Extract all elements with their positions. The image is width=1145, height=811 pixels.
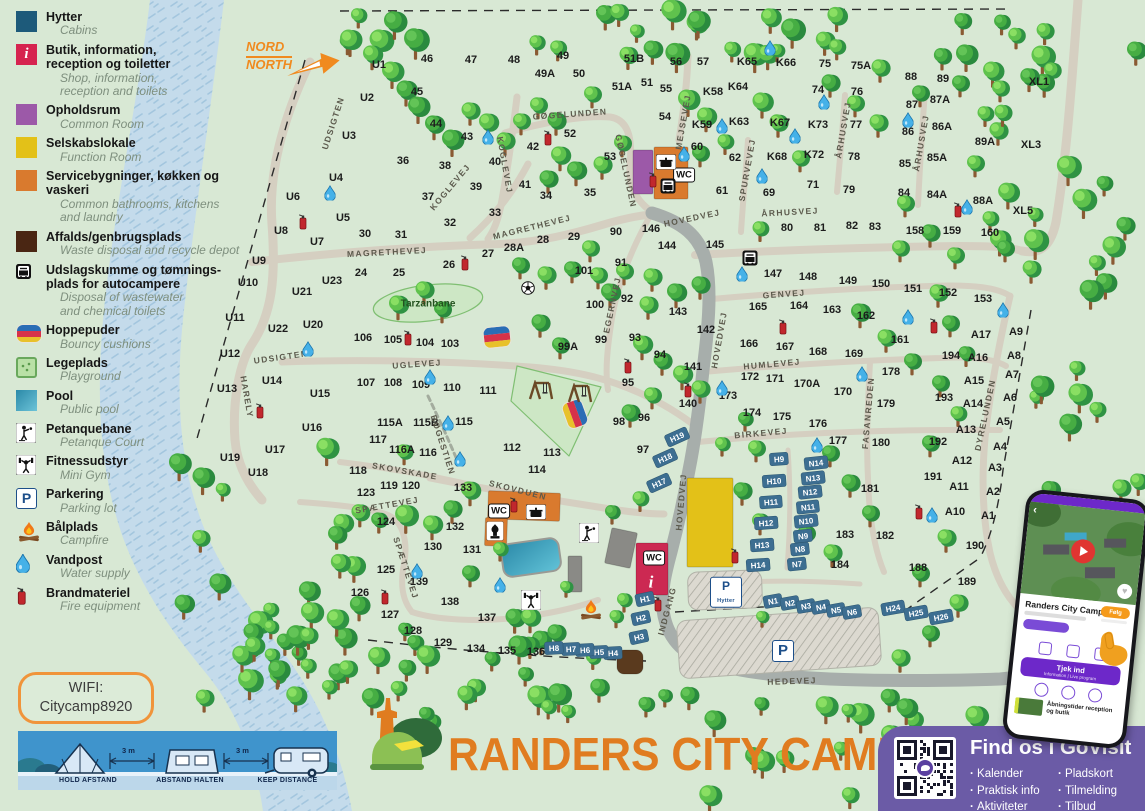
tree <box>738 412 754 432</box>
tree <box>1080 280 1105 310</box>
legend-label-en: Common bathrooms, kitchens and laundry <box>60 198 258 225</box>
caption-abstand-halten: ABSTAND HALTEN <box>140 777 240 784</box>
legend-label-da: Opholdsrum <box>46 103 144 117</box>
tree <box>822 74 841 98</box>
legend-label-en: Playground <box>60 370 121 383</box>
tree <box>724 42 741 63</box>
tree <box>564 261 582 283</box>
tree <box>397 444 414 465</box>
building <box>617 650 643 674</box>
tree <box>633 335 653 360</box>
tree <box>461 481 481 506</box>
legend-label-en: Mini Gym <box>60 469 128 482</box>
tree <box>959 346 976 367</box>
tree <box>922 625 940 647</box>
building <box>605 528 638 569</box>
tree <box>567 161 587 186</box>
building <box>654 147 688 199</box>
tree <box>870 114 889 138</box>
legend-label-da: Butik, information, reception og toilett… <box>46 43 170 72</box>
action-icon-2[interactable] <box>1066 644 1080 658</box>
legend-item-udslagskumme: Udslagskumme og tømnings- plads for auto… <box>16 263 258 319</box>
north-arrow-icon <box>286 52 342 78</box>
tree <box>824 544 843 568</box>
petanque-icon <box>16 422 46 450</box>
tree <box>912 565 930 587</box>
tree <box>930 284 949 308</box>
legend-label-en: Public pool <box>60 403 119 416</box>
tree <box>351 504 370 527</box>
road <box>741 140 748 232</box>
road <box>983 296 1020 610</box>
app-aerial-photo: ‹ ♥ <box>1020 502 1145 606</box>
govisit-bullet: Pladskort <box>1058 766 1117 783</box>
tree <box>316 438 339 466</box>
tree <box>399 660 417 682</box>
tree <box>584 86 602 108</box>
feature-icon-1[interactable] <box>1034 682 1049 697</box>
tree <box>950 594 969 618</box>
legend-item-selskabslokale: SelskabslokaleFunction Room <box>16 136 258 164</box>
wifi-info-box: WIFI: Citycamp8920 <box>18 672 154 724</box>
tree <box>560 581 574 598</box>
tree <box>479 113 499 138</box>
legend-item-legeplads: LegepladsPlayground <box>16 356 258 384</box>
tree <box>938 529 957 553</box>
tree <box>1069 361 1085 381</box>
tree <box>872 59 891 83</box>
qr-code <box>894 737 956 799</box>
tree <box>934 48 952 71</box>
tree <box>371 512 388 533</box>
legend-label-en: Bouncy cushions <box>60 338 151 351</box>
tree <box>328 526 347 550</box>
color-swatch <box>16 169 46 225</box>
tree <box>952 75 970 97</box>
tree <box>992 80 1010 102</box>
tree <box>748 440 766 462</box>
building <box>636 543 668 595</box>
tree <box>638 697 655 718</box>
tree <box>781 18 806 48</box>
govisit-bullet: Aktiviteter <box>970 799 1040 811</box>
parking-icon: P <box>16 487 46 515</box>
phone-screen: ‹ ♥ Randers City Camp Følg Tjek ind Info… <box>1006 493 1145 746</box>
legend-label-en: Campfire <box>60 534 109 547</box>
playground-icon <box>16 356 46 384</box>
dump-station-icon <box>16 263 46 319</box>
legend-label-da: Bålplads <box>46 520 109 534</box>
tree <box>617 593 633 613</box>
tree <box>1072 189 1097 219</box>
tree <box>196 690 215 713</box>
road <box>695 246 1022 255</box>
road <box>837 95 845 192</box>
legend-label-en: Disposal of wastewater and chemical toil… <box>60 291 221 318</box>
color-swatch <box>16 103 46 131</box>
tree <box>994 15 1011 36</box>
legend-label-en: Parking lot <box>60 502 117 515</box>
tree <box>904 353 922 375</box>
tree <box>851 303 871 328</box>
feature-icon-3[interactable] <box>1087 687 1102 702</box>
tree <box>954 13 972 35</box>
tree <box>734 482 753 506</box>
tree <box>462 565 480 587</box>
opening-thumbnail <box>1014 697 1044 716</box>
parking-area <box>687 570 762 611</box>
tree <box>594 156 613 180</box>
road <box>867 362 884 572</box>
legend-label-da: Petanquebane <box>46 422 144 436</box>
campfire-icon <box>16 520 46 548</box>
legend-label-da: Udslagskumme og tømnings- plads for auto… <box>46 263 221 292</box>
legend-label-da: Affalds/genbrugsplads <box>46 230 239 244</box>
tree <box>301 659 317 679</box>
brand-title: RANDERS CITY CAMP <box>448 727 906 781</box>
tree <box>661 0 686 30</box>
fire-extinguisher-icon <box>16 586 46 614</box>
tree <box>404 28 430 59</box>
pool <box>500 537 562 578</box>
building <box>633 150 653 194</box>
building <box>687 478 733 567</box>
pool-icon <box>16 389 46 417</box>
tree <box>680 687 699 710</box>
tree <box>1028 207 1044 227</box>
tree <box>485 652 501 672</box>
tree <box>658 689 673 707</box>
tree <box>718 134 735 155</box>
tree <box>753 92 774 118</box>
legend-item-parkering: PParkeringParking lot <box>16 487 258 515</box>
road <box>918 92 925 205</box>
tree <box>816 696 839 724</box>
tree <box>442 130 465 158</box>
tree <box>640 296 659 320</box>
legend-label-da: Hoppepuder <box>46 323 151 337</box>
tree <box>932 375 950 397</box>
tree <box>697 107 717 132</box>
tree <box>1037 23 1055 45</box>
tree <box>521 608 541 633</box>
tree <box>654 352 673 376</box>
legend-label-da: Servicebygninger, køkken og vaskeri <box>46 169 258 198</box>
tree <box>753 221 770 242</box>
tree <box>550 40 567 61</box>
tree <box>978 106 995 127</box>
building <box>485 518 508 547</box>
tree <box>897 195 915 217</box>
tree <box>827 7 848 32</box>
tree <box>770 114 789 138</box>
road <box>712 285 1010 299</box>
tree <box>619 47 638 70</box>
tree <box>605 505 621 525</box>
tree <box>368 647 390 674</box>
legend-label-en: Water supply <box>60 567 130 580</box>
legend-label-en: Shop, information, reception and toilets <box>60 72 170 99</box>
govisit-bullets-left: KalenderPraktisk infoAktiviteter <box>970 766 1040 811</box>
tree <box>644 268 663 292</box>
tree <box>892 649 911 673</box>
tree <box>1130 473 1145 496</box>
tree <box>363 45 383 70</box>
tree <box>630 24 645 42</box>
legend-item-pool: PoolPublic pool <box>16 389 258 417</box>
tree <box>1127 42 1145 66</box>
tree <box>457 686 477 711</box>
legend-label-da: Brandmateriel <box>46 586 140 600</box>
legend-item-hytter: HytterCabins <box>16 10 258 38</box>
tree <box>423 515 443 540</box>
tree <box>540 170 559 194</box>
tree <box>1068 383 1093 413</box>
tree <box>1097 176 1114 197</box>
tree <box>532 314 551 338</box>
tree <box>351 8 367 28</box>
tree <box>692 145 710 167</box>
legend-item-fitnessudstyr: FitnessudstyrMini Gym <box>16 454 258 482</box>
tree <box>529 35 545 55</box>
tree <box>1059 414 1082 442</box>
tree <box>942 315 960 337</box>
tree <box>922 435 940 457</box>
legend-item-servicebygninger: Servicebygninger, køkken og vaskeriCommo… <box>16 169 258 225</box>
tree <box>444 500 463 524</box>
tree <box>1020 68 1040 92</box>
legend-label-da: Vandpost <box>46 553 130 567</box>
water-drop-icon <box>16 553 46 581</box>
tree <box>601 283 621 308</box>
tree <box>512 257 530 279</box>
tree <box>989 122 1008 146</box>
govisit-eye-icon <box>915 758 935 778</box>
tree <box>538 266 557 290</box>
tree <box>508 635 532 664</box>
favorite-heart-icon[interactable]: ♥ <box>1116 583 1132 599</box>
trees <box>169 0 1145 811</box>
tree <box>842 474 861 498</box>
legend-item-affalds/genbrugsplads: Affalds/genbrugspladsWaste disposal and … <box>16 230 258 258</box>
tree <box>998 183 1020 210</box>
color-swatch <box>16 10 46 38</box>
tree <box>878 329 897 353</box>
legend-label-en: Function Room <box>60 151 141 164</box>
road <box>703 357 1006 372</box>
tree <box>688 11 711 39</box>
road <box>698 430 1000 442</box>
tree <box>1089 255 1106 276</box>
playground-area <box>511 366 601 456</box>
govisit-bullet: Tilmelding <box>1058 783 1117 800</box>
legend-item-brandmateriel: BrandmaterielFire equipment <box>16 586 258 614</box>
tree <box>673 365 693 390</box>
tree <box>754 697 769 716</box>
legend-label-da: Selskabslokale <box>46 136 141 150</box>
tree <box>350 596 371 621</box>
tree <box>331 554 351 579</box>
tree <box>842 787 860 809</box>
tree <box>610 610 625 628</box>
tree <box>847 95 865 117</box>
tree <box>947 247 965 269</box>
legend-label-da: Pool <box>46 389 119 403</box>
color-swatch <box>16 230 46 258</box>
tree <box>552 337 570 359</box>
legend-item-vandpost: VandpostWater supply <box>16 553 258 581</box>
bouncy-cushion-icon <box>16 323 46 351</box>
play-button-icon[interactable] <box>1070 538 1096 564</box>
tree <box>667 283 687 308</box>
legend-label-en: Fire equipment <box>60 600 140 613</box>
parking-area <box>676 607 882 679</box>
tree <box>417 645 441 674</box>
tree <box>622 404 641 428</box>
tree <box>829 39 846 60</box>
category-chip[interactable] <box>1023 618 1070 633</box>
tree <box>590 679 610 703</box>
tree <box>951 406 968 427</box>
road <box>428 396 458 462</box>
legend-label-da: Fitnessudstyr <box>46 454 128 468</box>
legend-item-butik: iButik, information, reception og toilet… <box>16 43 258 99</box>
tree <box>997 240 1015 262</box>
action-icon-1[interactable] <box>1038 641 1052 655</box>
legend-label-da: Parkering <box>46 487 117 501</box>
tree <box>715 437 731 457</box>
building <box>488 491 561 521</box>
legend: HytterCabinsiButik, information, recepti… <box>16 10 258 619</box>
legend-label-en: Cabins <box>60 24 97 37</box>
legend-label-da: Hytter <box>46 10 97 24</box>
legend-label-en: Waste disposal and recycle depot <box>60 244 239 257</box>
tree <box>761 8 782 34</box>
information-icon: i <box>16 43 46 99</box>
tree <box>610 4 629 27</box>
color-swatch <box>16 136 46 164</box>
tree <box>582 240 600 262</box>
govisit-bullet: Tilbud <box>1058 799 1117 811</box>
govisit-bullets-right: PladskortTilmeldingTilbud <box>1058 766 1117 811</box>
tree <box>699 785 722 811</box>
tree <box>1089 402 1106 423</box>
tree <box>1023 260 1042 283</box>
tree <box>822 445 840 467</box>
campground-map-page: U1U2U3U4U5U6U7U8U9U10U11U12U13U14U15U16U… <box>0 0 1145 811</box>
govisit-bullet: Kalender <box>970 766 1040 783</box>
tree <box>462 102 481 126</box>
govisit-bullet: Praktisk info <box>970 783 1040 800</box>
legend-item-petanquebane: PetanquebanePetanque Court <box>16 422 258 450</box>
tree <box>792 150 810 172</box>
tree <box>752 513 770 535</box>
legend-item-bålplads: BålpladsCampfire <box>16 520 258 548</box>
follow-button[interactable]: Følg <box>1101 606 1131 620</box>
logo-church-icon <box>364 696 444 791</box>
followers-placeholder <box>1101 619 1127 625</box>
mini-gym-icon <box>16 454 46 482</box>
tree <box>644 41 664 65</box>
tree <box>1008 28 1026 50</box>
tree <box>967 155 985 177</box>
legend-item-hoppepuder: HoppepuderBouncy cushions <box>16 323 258 351</box>
tree <box>912 85 930 107</box>
hand-cursor-icon <box>1094 628 1134 671</box>
tree <box>1116 217 1135 241</box>
tree <box>798 525 816 547</box>
caption-keep-distance: KEEP DISTANCE <box>240 777 335 784</box>
tree <box>518 667 534 687</box>
tree <box>956 44 979 72</box>
legend-label-en: Petanque Court <box>60 436 144 449</box>
wifi-label: WIFI: <box>21 679 151 698</box>
wifi-password: Citycamp8920 <box>21 698 151 717</box>
tree <box>862 505 880 527</box>
legend-label-en: Common Room <box>60 118 144 131</box>
back-chevron-icon[interactable]: ‹ <box>1033 504 1038 516</box>
tree <box>322 680 338 700</box>
tree <box>983 211 1000 232</box>
tree <box>892 240 910 262</box>
phone-mockup: ‹ ♥ Randers City Camp Følg Tjek ind Info… <box>1001 488 1145 750</box>
legend-label-da: Legeplads <box>46 356 121 370</box>
legend-item-opholdsrum: OpholdsrumCommon Room <box>16 103 258 131</box>
tree <box>1102 236 1126 265</box>
caption-hold-afstand: HOLD AFSTAND <box>38 777 138 784</box>
tree <box>301 602 324 630</box>
tree <box>548 112 567 136</box>
tree <box>561 705 576 723</box>
tree <box>340 30 363 58</box>
tree <box>586 651 601 670</box>
gap-label-1: 3 m <box>122 746 135 755</box>
keep-distance-banner: HOLD AFSTAND ABSTAND HALTEN KEEP DISTANC… <box>18 731 337 790</box>
feature-icon-2[interactable] <box>1061 684 1076 699</box>
gap-label-2: 3 m <box>236 746 249 755</box>
road <box>787 450 790 568</box>
tree <box>530 97 548 119</box>
